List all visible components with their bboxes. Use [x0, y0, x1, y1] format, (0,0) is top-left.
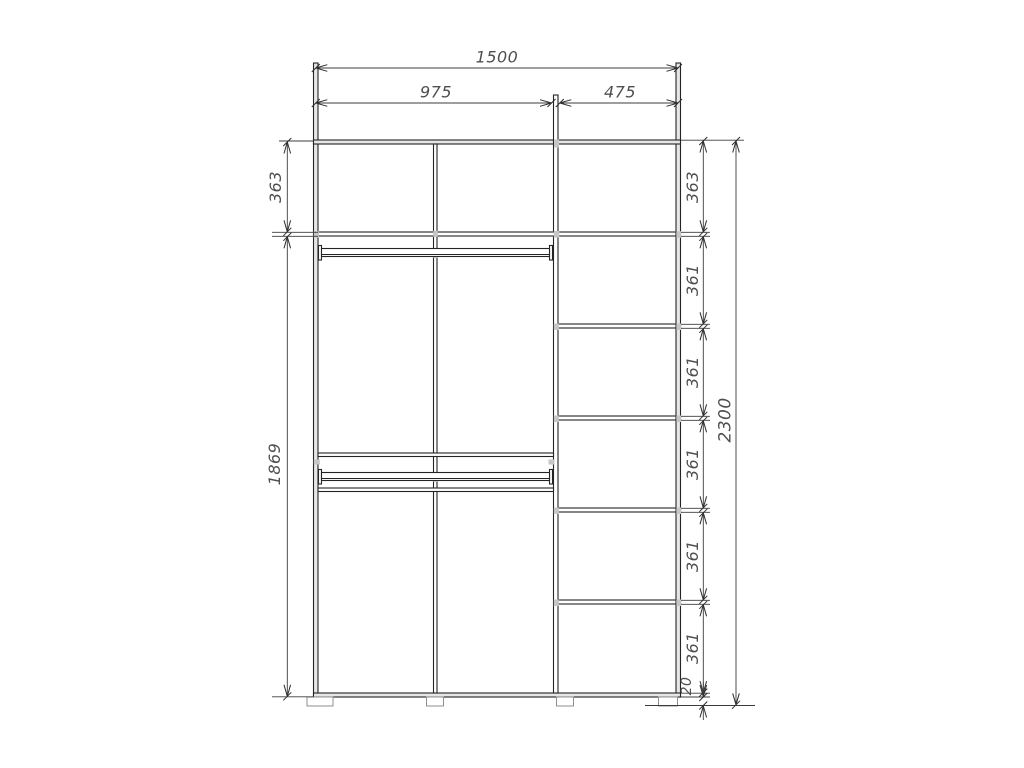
- dim-right-row-5-label: 361: [683, 632, 702, 664]
- dim-right-row-3: 361: [683, 417, 707, 512]
- rod-body: [322, 249, 550, 257]
- dim-left-top-height: 363: [266, 138, 291, 236]
- foot-2: [427, 697, 444, 706]
- dim-right-width-label: 475: [604, 83, 636, 102]
- foot-4: [659, 697, 678, 706]
- dim-left-width: 975: [312, 83, 556, 108]
- cabinet-structure: [314, 63, 681, 697]
- foot-1: [307, 697, 333, 706]
- bottom-panel: [314, 693, 681, 697]
- rod-body: [322, 473, 550, 481]
- connector-marks: [314, 140, 682, 607]
- dim-right-row-4: 361: [683, 509, 707, 604]
- dim-left-top-height-label: 363: [266, 171, 285, 203]
- extension-lines: [272, 140, 755, 705]
- left-mid-shelf-lower: [318, 488, 554, 492]
- dim-total-height-label: 2300: [716, 397, 736, 442]
- dim-total-width: 1500: [312, 48, 682, 73]
- dim-total-height: 2300: [716, 137, 741, 709]
- dim-left-width-label: 975: [420, 83, 452, 102]
- dim-plinth-height-label: 20: [679, 677, 695, 696]
- dim-right-top-height-label: 363: [683, 171, 702, 203]
- drawing-canvas: 1500 975 475 363 1869 363 361 361: [0, 0, 1024, 768]
- left-wall: [314, 63, 319, 697]
- dim-left-main-height: 1869: [265, 233, 291, 701]
- dim-right-top-height: 363: [683, 137, 707, 236]
- left-mid-shelf-upper: [318, 453, 554, 457]
- dim-right-row-4-label: 361: [683, 540, 702, 572]
- dim-right-row-1: 361: [683, 233, 707, 328]
- dim-right-row-3-label: 361: [683, 448, 702, 480]
- dim-plinth-height: 20: [679, 677, 707, 720]
- dim-right-row-2-label: 361: [683, 356, 702, 388]
- feet: [307, 697, 678, 706]
- dim-right-width: 475: [556, 83, 682, 108]
- wardrobe-dimension-drawing: 1500 975 475 363 1869 363 361 361: [0, 0, 1024, 768]
- right-shelf-4: [558, 600, 676, 604]
- dim-total-width-label: 1500: [476, 48, 519, 67]
- right-shelf-3: [558, 508, 676, 512]
- top-shelf: [318, 232, 676, 236]
- foot-3: [557, 697, 574, 706]
- right-shelf-1: [558, 324, 676, 328]
- dim-right-row-1-label: 361: [683, 264, 702, 296]
- dim-left-main-height-label: 1869: [265, 443, 284, 486]
- left-section-divider: [434, 144, 438, 693]
- top-panel: [314, 140, 681, 144]
- right-shelf-2: [558, 416, 676, 420]
- dim-right-row-2: 361: [683, 325, 707, 420]
